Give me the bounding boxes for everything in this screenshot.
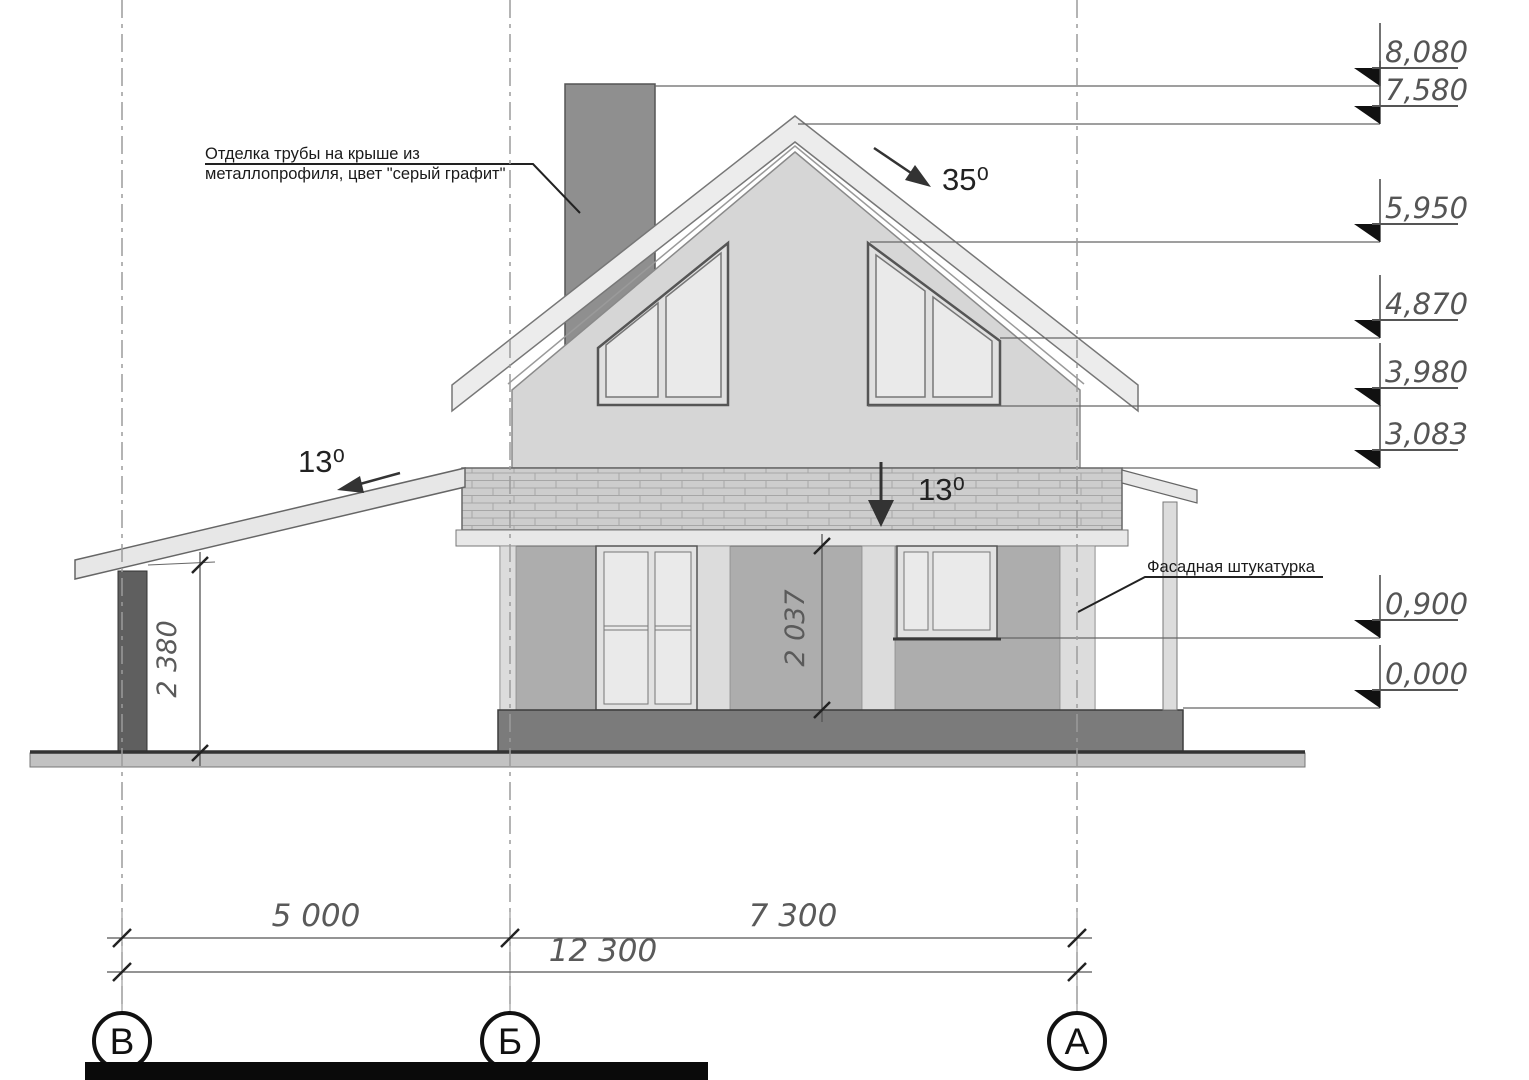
elevation-marker: 3,980 [1354,343,1468,406]
carport-slope-annotation: 13⁰ [298,444,400,493]
axis-bubbles: В Б А [94,1013,1105,1069]
axis-label: Б [498,1021,522,1062]
porch [1122,470,1197,710]
roof-slope-annotation: 35⁰ [874,148,989,197]
axis-bubble-v: В [94,1013,150,1069]
ground-line [30,752,1305,767]
elevation-marker: 0,000 [1354,645,1468,708]
elevation-drawing: 8,080 7,580 5,950 4,870 3,980 [0,0,1529,1080]
axis-bubble-a: А [1049,1013,1105,1069]
carport-slope-label: 13⁰ [298,444,345,479]
plinth [498,710,1183,753]
facade-note-label: Фасадная штукатурка [1147,558,1316,576]
opening-height-value: 2 037 [780,589,811,666]
elevation-value: 4,870 [1385,287,1468,321]
facade-note: Фасадная штукатурка [1078,558,1323,612]
facade-note-leader [1078,577,1323,612]
elevation-marker: 5,950 [1354,179,1468,242]
elevation-value: 0,900 [1385,587,1468,621]
elevation-marker: 4,870 [1354,275,1468,338]
total-span-value: 12 300 [549,933,657,969]
chimney-note-line1: Отделка трубы на крыше из [205,145,420,163]
porch-post [1163,502,1177,710]
chimney-note-line2: металлопрофиля, цвет "серый графит" [205,165,506,183]
pilaster [697,546,730,710]
elevation-marker: 0,900 [1354,575,1468,638]
ground-floor-window [893,546,1001,639]
roof-slope-label: 35⁰ [942,162,989,197]
span-vb-value: 5 000 [272,898,361,934]
porch-roof [1122,470,1197,503]
elevation-value: 3,083 [1385,417,1468,451]
carport-roof-beam [75,468,465,579]
carport [75,468,465,753]
balcony-slope-label: 13⁰ [918,472,965,507]
elevation-marker: 3,083 [1354,405,1468,468]
elevation-value: 8,080 [1385,35,1468,69]
span-ba-value: 7 300 [749,898,838,934]
elevation-value: 7,580 [1385,73,1468,107]
pilaster [500,546,516,710]
dim-carport-height: 2 380 [148,552,215,766]
pilaster [862,546,895,710]
bottom-dimensions: 5 000 7 300 12 300 [107,898,1092,1013]
carport-height-value: 2 380 [152,620,183,697]
axis-bubble-b: Б [482,1013,538,1069]
elevation-value: 3,980 [1385,355,1468,389]
elevation-value: 0,000 [1385,657,1468,691]
drawing-svg: 8,080 7,580 5,950 4,870 3,980 [0,0,1529,1080]
slope-arrow [905,165,931,187]
bottom-black-bar [85,1062,708,1080]
dim-line-total: 12 300 [107,933,1092,981]
axis-label: В [110,1021,135,1062]
balcony-band [462,468,1122,530]
axis-label: А [1065,1021,1090,1062]
house-elevation [30,84,1305,767]
glazed-door [596,546,697,710]
balcony-band-trim [456,530,1128,546]
elevation-value: 5,950 [1385,191,1468,225]
